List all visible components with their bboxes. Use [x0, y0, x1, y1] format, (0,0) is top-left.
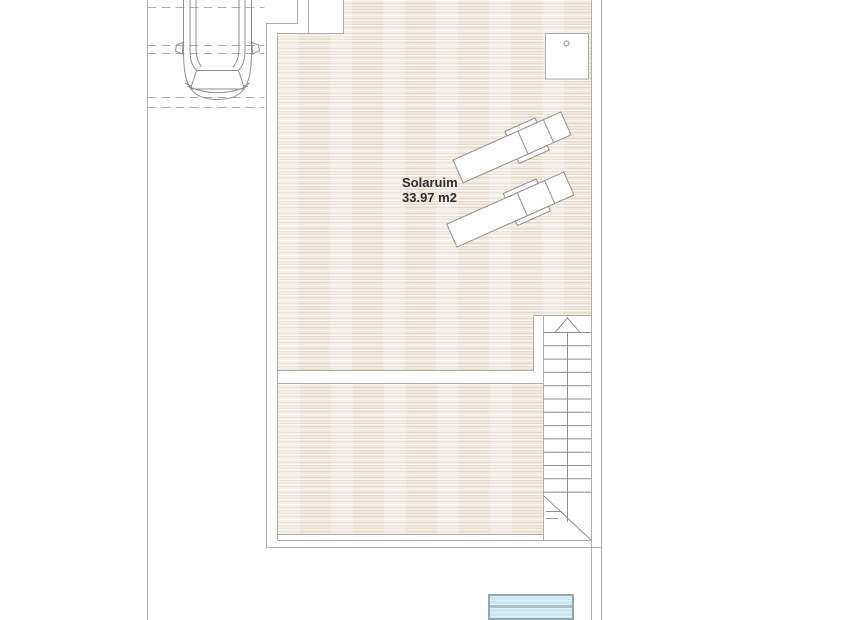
- room-name: Solaruim: [402, 175, 458, 190]
- swimming-pool: [488, 594, 574, 620]
- car-mirror-left: [176, 43, 184, 55]
- parking-dashed-lines: [148, 8, 265, 108]
- deck-border-lines: [278, 0, 592, 541]
- stair-up-arrow-icon: [555, 318, 581, 333]
- staircase: [544, 318, 592, 540]
- rooftop-equipment-box: [546, 34, 589, 80]
- car-plan-icon: [176, 0, 260, 100]
- floorplan-canvas: Solaruim 33.97 m2: [0, 0, 850, 620]
- room-area: 33.97 m2: [402, 190, 458, 205]
- car-mirror-right: [252, 43, 260, 55]
- floorplan-linework: [0, 0, 850, 620]
- room-label: Solaruim 33.97 m2: [402, 175, 458, 205]
- sun-lounger-icon: [451, 107, 573, 187]
